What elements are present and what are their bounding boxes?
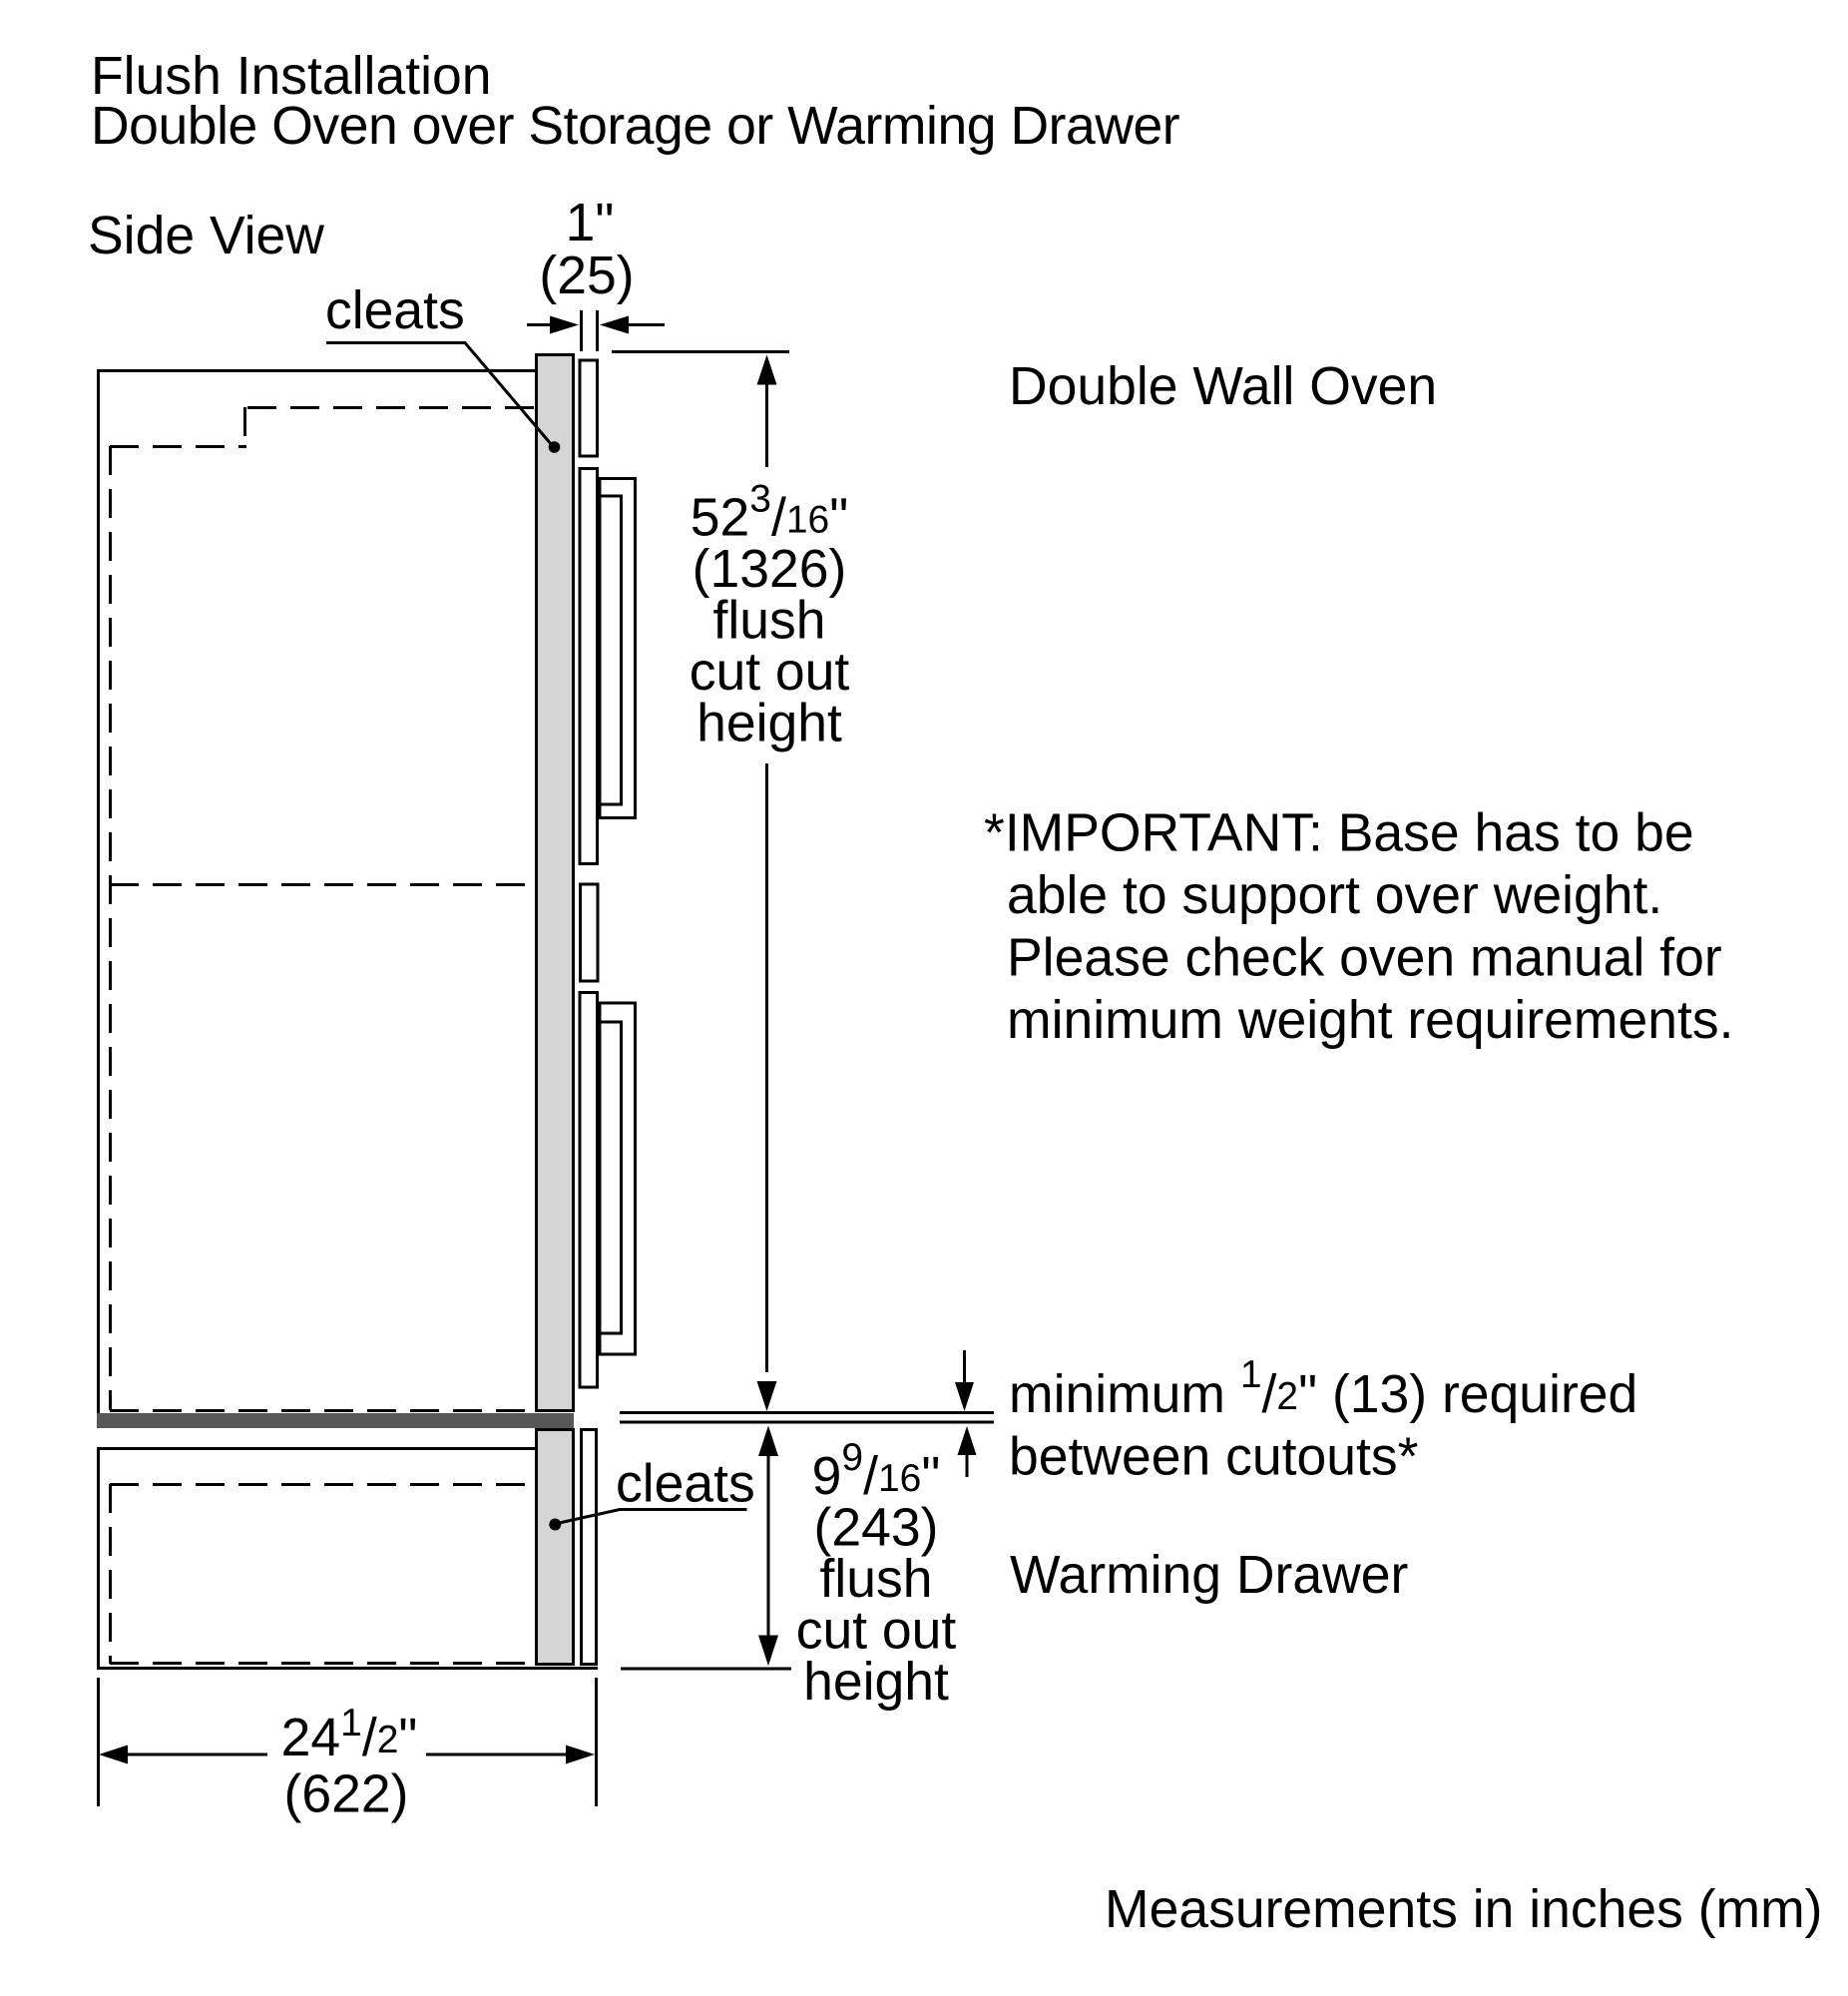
svg-text:Please check oven manual for: Please check oven manual for	[1007, 929, 1722, 988]
svg-text:Double Wall Oven: Double Wall Oven	[1009, 357, 1437, 416]
svg-text:minimum weight requirements.: minimum weight requirements.	[1007, 991, 1733, 1050]
svg-text:(622): (622)	[284, 1765, 409, 1824]
svg-text:cut out: cut out	[690, 643, 850, 702]
svg-text:height: height	[696, 695, 842, 753]
svg-text:(1326): (1326)	[693, 540, 847, 599]
svg-text:flush: flush	[712, 592, 825, 651]
svg-text:cleats: cleats	[325, 281, 465, 340]
svg-text:523/16": 523/16"	[691, 478, 848, 548]
svg-text:*IMPORTANT: Base has to be: *IMPORTANT: Base has to be	[984, 804, 1694, 863]
svg-text:between cutouts*: between cutouts*	[1009, 1428, 1418, 1487]
svg-text:Side View: Side View	[88, 207, 324, 265]
svg-text:(25): (25)	[539, 247, 634, 305]
svg-text:flush: flush	[819, 1550, 932, 1609]
svg-text:able to support over weight.: able to support over weight.	[1007, 866, 1662, 925]
svg-text:(243): (243)	[814, 1499, 939, 1558]
svg-text:Double Oven over Storage or Wa: Double Oven over Storage or Warming Draw…	[91, 97, 1179, 156]
svg-text:241/2": 241/2"	[281, 1702, 418, 1767]
svg-text:1": 1"	[566, 194, 615, 252]
svg-text:Warming Drawer: Warming Drawer	[1010, 1546, 1408, 1605]
svg-text:cut out: cut out	[796, 1602, 957, 1661]
svg-text:minimum 1/2" (13) required: minimum 1/2" (13) required	[1009, 1353, 1637, 1424]
svg-text:height: height	[803, 1653, 949, 1712]
svg-text:99/16": 99/16"	[812, 1436, 941, 1506]
svg-text:cleats: cleats	[616, 1455, 755, 1514]
svg-text:Measurements in inches (mm): Measurements in inches (mm)	[1105, 1880, 1822, 1939]
